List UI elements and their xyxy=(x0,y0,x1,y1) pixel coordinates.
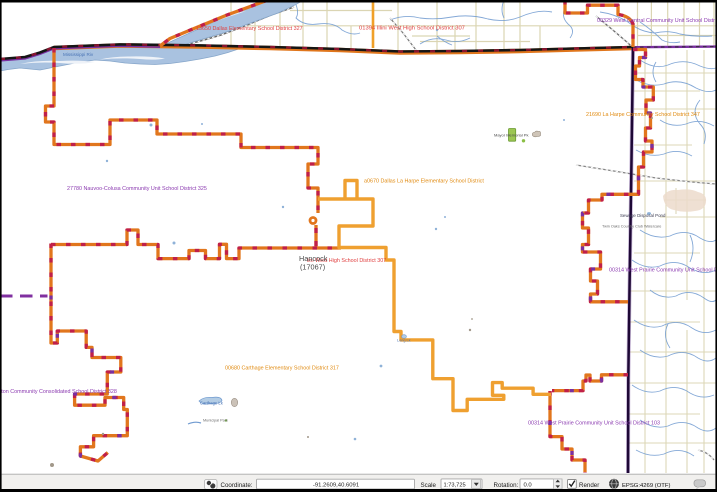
svg-text:Rotation:: Rotation: xyxy=(494,482,519,489)
svg-text:00314 West Prairie Community U: 00314 West Prairie Community Unit School… xyxy=(609,268,717,274)
svg-text:0.0: 0.0 xyxy=(524,483,533,489)
svg-text:EPSG:4269 (OTF): EPSG:4269 (OTF) xyxy=(622,483,670,489)
svg-text:00314 West Prairie Community U: 00314 West Prairie Community Unit School… xyxy=(528,421,660,427)
svg-text:-91.2609,40.6091: -91.2609,40.6091 xyxy=(313,483,359,489)
svg-text:a0670 Dallas La Harpe Elementa: a0670 Dallas La Harpe Elementary School … xyxy=(364,179,484,185)
svg-text:Coordinate:: Coordinate: xyxy=(221,482,253,489)
svg-text:Mississippi Riv: Mississippi Riv xyxy=(63,52,94,57)
svg-text:1:73,725: 1:73,725 xyxy=(444,483,466,489)
svg-text:Mayor Memorial Pk: Mayor Memorial Pk xyxy=(494,133,528,138)
svg-text:00680 Carthage Elementary Scho: 00680 Carthage Elementary School Distric… xyxy=(225,366,339,372)
svg-text:27780 Nauvoo-Colusa Community: 27780 Nauvoo-Colusa Community Unit Schoo… xyxy=(67,186,207,192)
svg-text:00329 West Central Community U: 00329 West Central Community Unit School… xyxy=(597,18,715,24)
svg-text:21690 La Harpe Community Schoo: 21690 La Harpe Community School District… xyxy=(586,112,700,118)
svg-text:(17067): (17067) xyxy=(300,263,325,272)
svg-text:13650 Dallas Elementary School: 13650 Dallas Elementary School District … xyxy=(196,26,303,32)
svg-text:Scale: Scale xyxy=(421,482,437,489)
svg-text:Carthage Lk: Carthage Lk xyxy=(200,401,224,406)
svg-text:Sewage Disposal Pond: Sewage Disposal Pond xyxy=(620,213,666,218)
svg-text:Twin Oaks Country Club Wate: Twin Oaks Country Club Watercare xyxy=(602,225,661,229)
svg-text:01394 Illini West High School: 01394 Illini West High School District 3… xyxy=(359,26,465,32)
svg-text:Render: Render xyxy=(579,482,599,489)
svg-text:08220 Hamilton Community Conso: 08220 Hamilton Community Consolidated Sc… xyxy=(0,389,117,395)
svg-text:Municipal Park: Municipal Park xyxy=(203,419,228,423)
svg-text:Long Lk: Long Lk xyxy=(397,339,411,343)
